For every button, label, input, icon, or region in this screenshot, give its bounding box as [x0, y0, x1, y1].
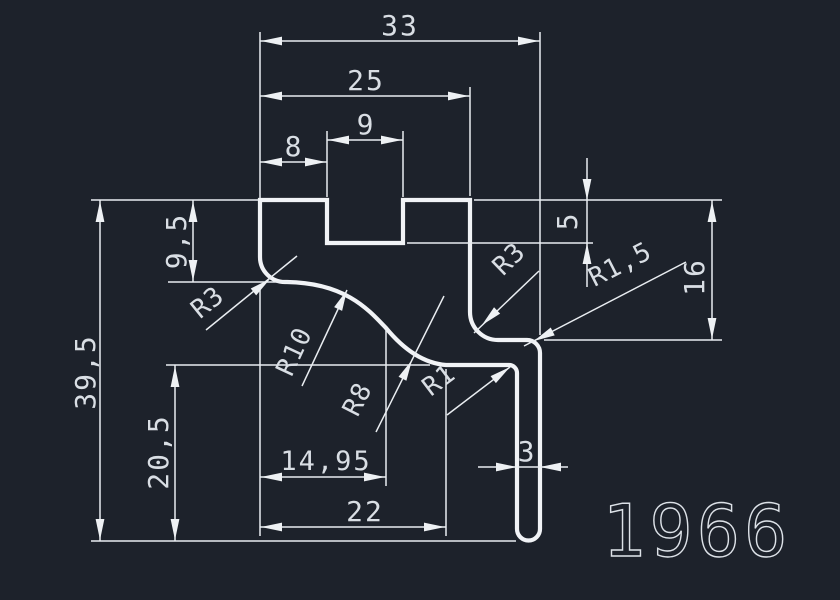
dim-3-label: 3 — [518, 435, 537, 468]
arrow-20-5-bottom — [171, 519, 180, 540]
drawing-number-label: 1966 — [602, 489, 791, 573]
arrow-8-right — [305, 158, 326, 167]
radius-r3-left-label: R3 — [186, 281, 231, 325]
dimension-labels: 33 25 9 8 39,5 9,5 20,5 14,95 22 3 5 16 … — [69, 9, 711, 528]
dim-20-5-label: 20,5 — [142, 414, 175, 489]
arrow-3-right — [540, 463, 561, 472]
arrow-25-right — [448, 92, 469, 101]
dim-8-label: 8 — [285, 130, 304, 163]
dimension-lines — [100, 41, 712, 541]
dim-33-label: 33 — [381, 9, 419, 42]
extension-lines — [91, 32, 722, 541]
dim-9-5-label: 9,5 — [160, 213, 193, 270]
dim-9-label: 9 — [357, 108, 376, 141]
arrow-39-5-bottom — [96, 519, 105, 540]
dim-5-label: 5 — [551, 212, 584, 231]
arrow-33-left — [261, 37, 282, 46]
dim-25-label: 25 — [347, 64, 385, 97]
arrow-22-left — [261, 523, 282, 532]
arrow-r8 — [399, 358, 416, 381]
arrow-20-5-top — [171, 366, 180, 387]
arrow-14-95-left — [261, 473, 282, 482]
arrow-5-bottom — [583, 243, 592, 264]
arrow-22-right — [424, 523, 445, 532]
arrow-16-bottom — [708, 318, 717, 339]
arrow-33-right — [518, 37, 539, 46]
arrow-9-left — [328, 136, 349, 145]
arrow-3-left — [496, 463, 517, 472]
arrow-39-5-top — [96, 201, 105, 222]
arrow-9-right — [381, 136, 402, 145]
radius-r10-label: R10 — [271, 323, 319, 381]
arrow-16-top — [708, 201, 717, 222]
dim-39-5-label: 39,5 — [69, 334, 102, 409]
dim-22-label: 22 — [346, 495, 384, 528]
radius-r8-label: R8 — [337, 378, 379, 421]
radius-r1-5-label: R1,5 — [584, 236, 657, 293]
dim-16-label: 16 — [678, 258, 711, 296]
arrowheads — [96, 37, 717, 540]
dim-14-95-label: 14,95 — [280, 446, 371, 477]
cad-drawing-viewport[interactable]: 33 25 9 8 39,5 9,5 20,5 14,95 22 3 5 16 … — [0, 0, 840, 600]
arrow-5-top — [583, 179, 592, 200]
arrow-25-left — [261, 92, 282, 101]
arrow-8-left — [261, 158, 282, 167]
